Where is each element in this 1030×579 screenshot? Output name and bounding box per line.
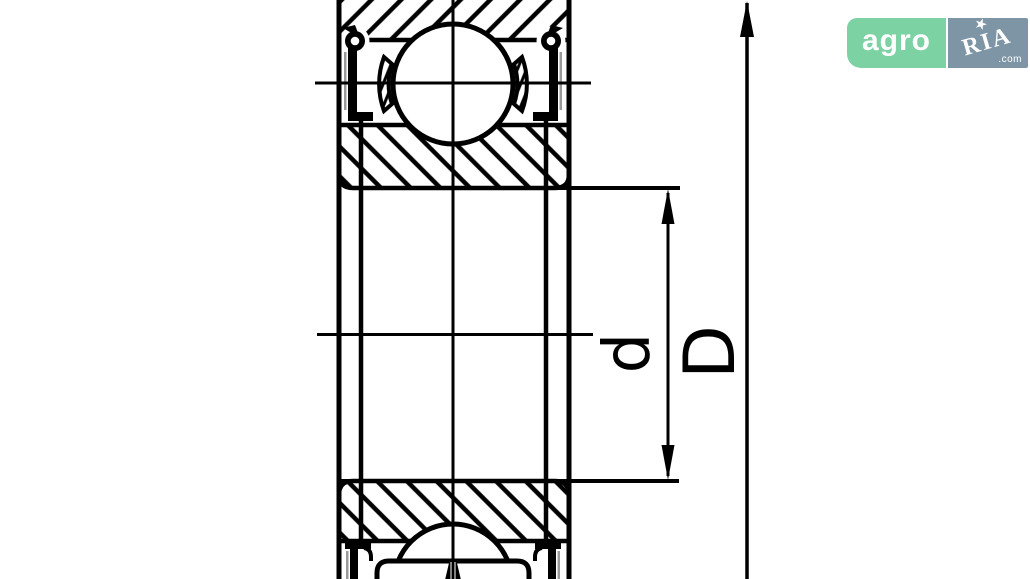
seal-bottom-right xyxy=(535,543,561,579)
label-inner-diameter: d xyxy=(591,333,665,374)
brand-right-box: ★ RIA .com xyxy=(948,18,1028,68)
brand-left-box: agro xyxy=(847,18,946,68)
seal-top-right xyxy=(533,25,566,121)
seal-bottom-left xyxy=(345,543,371,579)
arrowhead-up-icon xyxy=(662,189,675,224)
brand-suffix-text: .com xyxy=(998,54,1022,65)
arrowhead-up-icon xyxy=(740,1,754,37)
dimension-d: d xyxy=(591,189,675,480)
dimension-D: D xyxy=(669,1,754,579)
brand-watermark: agro ★ RIA .com xyxy=(847,18,1028,68)
bearing-cross-section-drawing: d D xyxy=(0,0,1030,579)
brand-left-text: agro xyxy=(862,26,931,56)
bearing-drawing-page: d D agro ★ RIA .com xyxy=(0,0,1030,579)
seal-top-left xyxy=(341,25,374,121)
arrowhead-down-icon xyxy=(662,445,675,480)
label-outer-diameter: D xyxy=(669,325,751,379)
